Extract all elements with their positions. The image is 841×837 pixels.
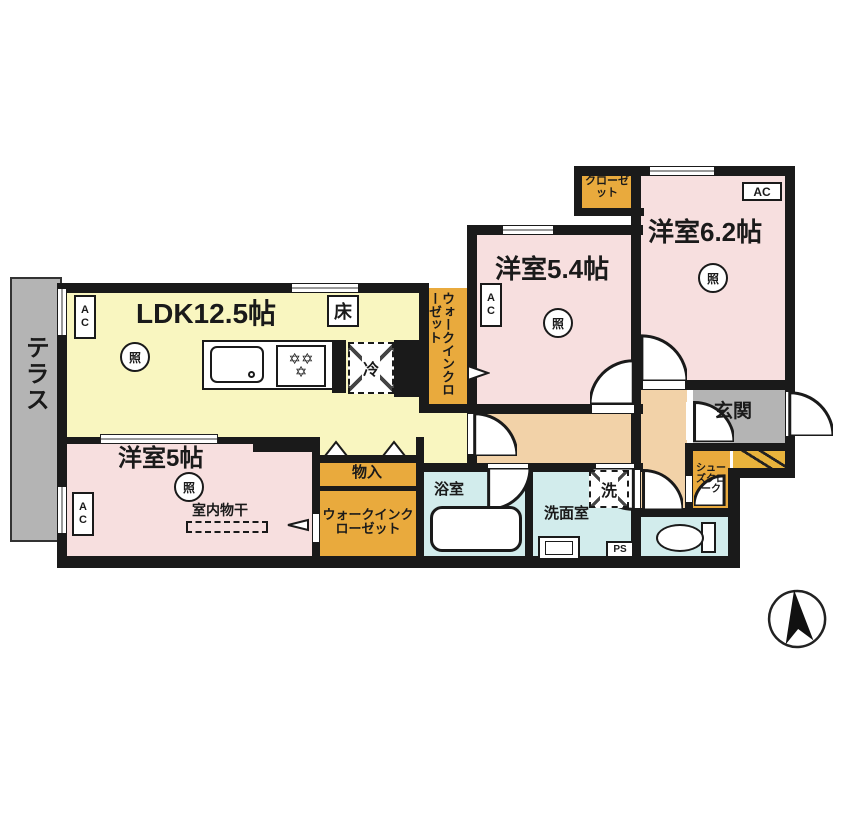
wall xyxy=(253,437,314,452)
entrance-label: 玄関 xyxy=(714,402,752,422)
storage-label: 物入 xyxy=(352,465,382,481)
washer-label: 洗 xyxy=(600,477,618,501)
ps-label: PS xyxy=(613,544,626,555)
vanity-sink-icon xyxy=(538,536,580,560)
bath-label: 浴室 xyxy=(434,482,464,498)
stove-burners-icon: ✡✡✡ xyxy=(284,353,318,380)
stove-icon: ✡✡✡ xyxy=(276,345,326,387)
wall xyxy=(685,443,795,451)
door-arc-toilet xyxy=(641,468,683,510)
bedroom5-label: 洋室5帖 xyxy=(118,446,203,471)
fridge-label: 冷 xyxy=(362,356,380,380)
kitchen-sink-icon xyxy=(210,346,264,383)
wall xyxy=(467,225,643,235)
wall xyxy=(312,437,320,568)
light-symbol: 照 xyxy=(120,342,150,372)
folding-door-icon xyxy=(323,440,349,458)
terrace-label: テラス xyxy=(22,335,47,413)
shoes-closet-label: シューズクローク xyxy=(693,464,729,496)
drying-rail xyxy=(186,521,268,533)
door-arc-front-entrance xyxy=(787,390,833,436)
wall xyxy=(728,468,740,568)
bathtub-icon xyxy=(430,506,522,552)
wall xyxy=(394,340,422,397)
door-gap xyxy=(592,405,634,413)
wall xyxy=(57,283,429,293)
light-symbol: 照 xyxy=(174,472,204,502)
bedroom54-label: 洋室5.4帖 xyxy=(495,256,609,283)
window xyxy=(503,226,553,234)
light-symbol: 照 xyxy=(543,308,573,338)
ac-symbol: AC xyxy=(742,182,782,201)
walkin-closet-side-label: ウォークインクローゼット xyxy=(428,292,454,404)
fridge-space: 冷 xyxy=(348,342,394,394)
window xyxy=(58,487,66,533)
bedroom5-note-label: 室内物干 xyxy=(192,503,248,518)
opening-arrow-icon xyxy=(466,364,490,382)
toilet-bowl-icon xyxy=(656,524,704,552)
ac-symbol: AC xyxy=(72,492,94,536)
ldk-corridor-area2 xyxy=(419,406,471,466)
door-gap xyxy=(686,476,692,502)
north-compass-icon xyxy=(761,581,834,656)
folding-door-icon xyxy=(381,440,407,458)
washing-machine-space: 洗 xyxy=(589,470,629,508)
kitchen-sink-drain-icon xyxy=(248,371,255,378)
floor-heating-box: 床 xyxy=(327,295,359,327)
ac-symbol: AC xyxy=(74,295,96,339)
door-arc-bedroom54 xyxy=(590,358,636,404)
door-gap xyxy=(643,381,685,389)
door-arc-ldk xyxy=(472,411,517,456)
window xyxy=(292,284,358,292)
door-gap xyxy=(313,514,319,542)
washroom-label: 洗面室 xyxy=(544,506,589,522)
wall xyxy=(332,340,346,393)
wall xyxy=(574,166,582,216)
floor-plan: ✡✡✡ 冷 洗 PS 床 照 照 照 照 AC AC AC AC テラス LDK… xyxy=(0,0,841,837)
ldk-label: LDK12.5帖 xyxy=(136,299,276,328)
closet-label: クローゼット xyxy=(582,176,632,199)
pipe-space-box: PS xyxy=(606,541,634,558)
floor-heating-label: 床 xyxy=(334,298,352,324)
wall xyxy=(318,486,417,491)
window xyxy=(650,167,714,175)
opening-arrow-icon xyxy=(286,518,310,532)
walkin-closet-bottom-label: ウォークインクローゼット xyxy=(322,508,414,535)
window xyxy=(58,289,66,335)
bedroom62-label: 洋室6.2帖 xyxy=(648,219,762,246)
door-arc-bedroom62 xyxy=(639,333,687,381)
ac-symbol: AC xyxy=(480,283,502,327)
entrance-step-area xyxy=(733,449,786,470)
sliding-door xyxy=(100,434,218,444)
wall xyxy=(416,437,424,566)
light-symbol: 照 xyxy=(698,263,728,293)
